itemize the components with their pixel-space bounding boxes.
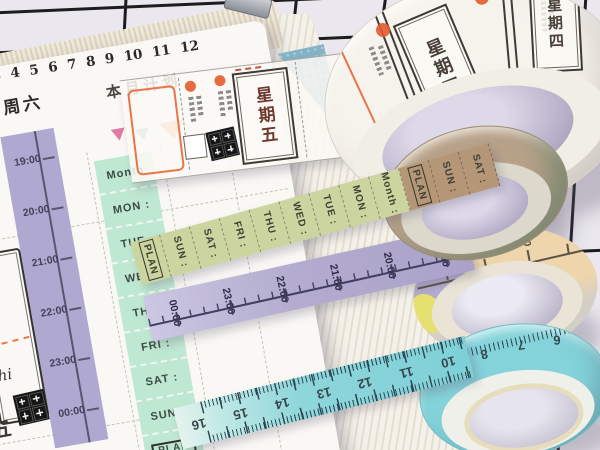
time-label: 19:00 [6, 153, 42, 171]
time-label: 00:00 [50, 404, 86, 422]
time-label: 20:00 [15, 203, 51, 221]
tiny-text-column [196, 96, 204, 118]
orange-dot-stamp [375, 22, 391, 38]
photo-washi-tape-scene: 3 4 5 6 7 8 9 10 11 12 周六 本月计划 19:00 20:… [0, 0, 600, 450]
black-stamp-grid [205, 126, 240, 161]
tiny-text-column [188, 97, 196, 123]
tiny-text-column [226, 90, 234, 112]
friday-frame: 星期五 [232, 67, 299, 165]
orange-dot-stamp [184, 80, 196, 92]
roll-tick [566, 244, 570, 255]
ruler-number: 6 [553, 332, 561, 347]
time-label: 22:00 [33, 303, 69, 321]
pink-triangle-decoration [111, 127, 127, 141]
roll-tick [527, 250, 531, 261]
orange-dot-stamp [474, 0, 490, 6]
saturday-label: 周六 [1, 88, 45, 120]
orange-frame-box [127, 85, 185, 176]
black-stamp-grid [13, 389, 50, 426]
time-label: 23:00 [42, 354, 78, 372]
thursday-label-inner: 星期四 [544, 0, 568, 51]
orange-dot-stamp [214, 75, 226, 87]
friday-label: 星期五 [249, 85, 281, 148]
small-box-outline [183, 133, 208, 160]
tiny-text-column [218, 91, 226, 117]
time-label: 21:00 [24, 253, 60, 271]
thursday-frame-inner-wrap: 星期四 [528, 0, 583, 73]
ruler-number: 5 [588, 332, 595, 347]
